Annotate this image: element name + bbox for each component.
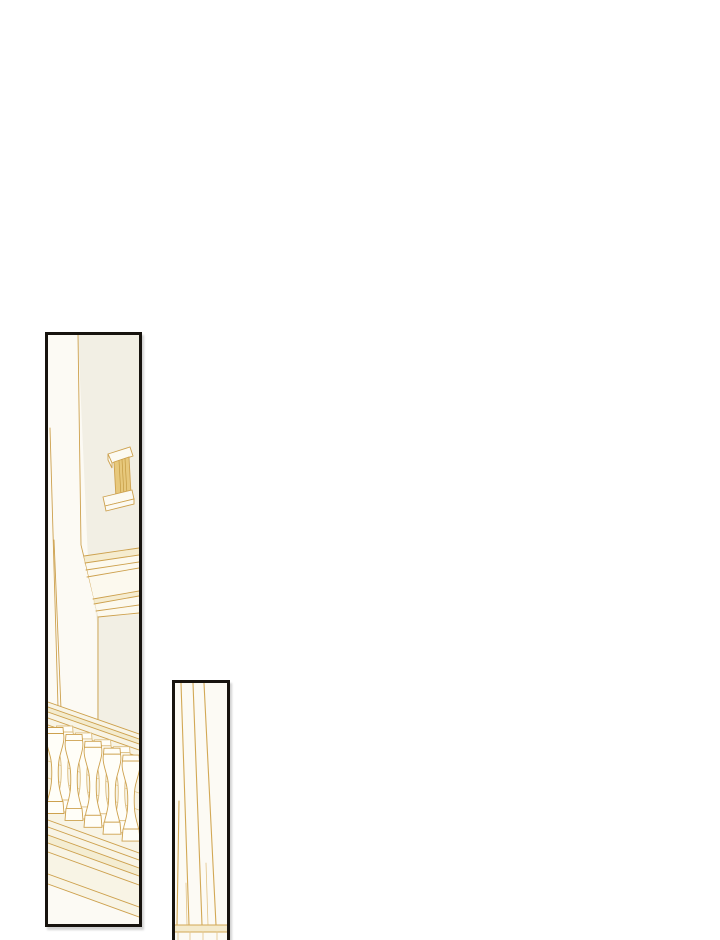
comic-page [0, 0, 720, 940]
panel-right-art-svg [175, 683, 227, 940]
panel-left-door-balustrade [45, 332, 142, 927]
panel-right-column [172, 680, 230, 940]
panel-left-art-svg [48, 335, 139, 924]
